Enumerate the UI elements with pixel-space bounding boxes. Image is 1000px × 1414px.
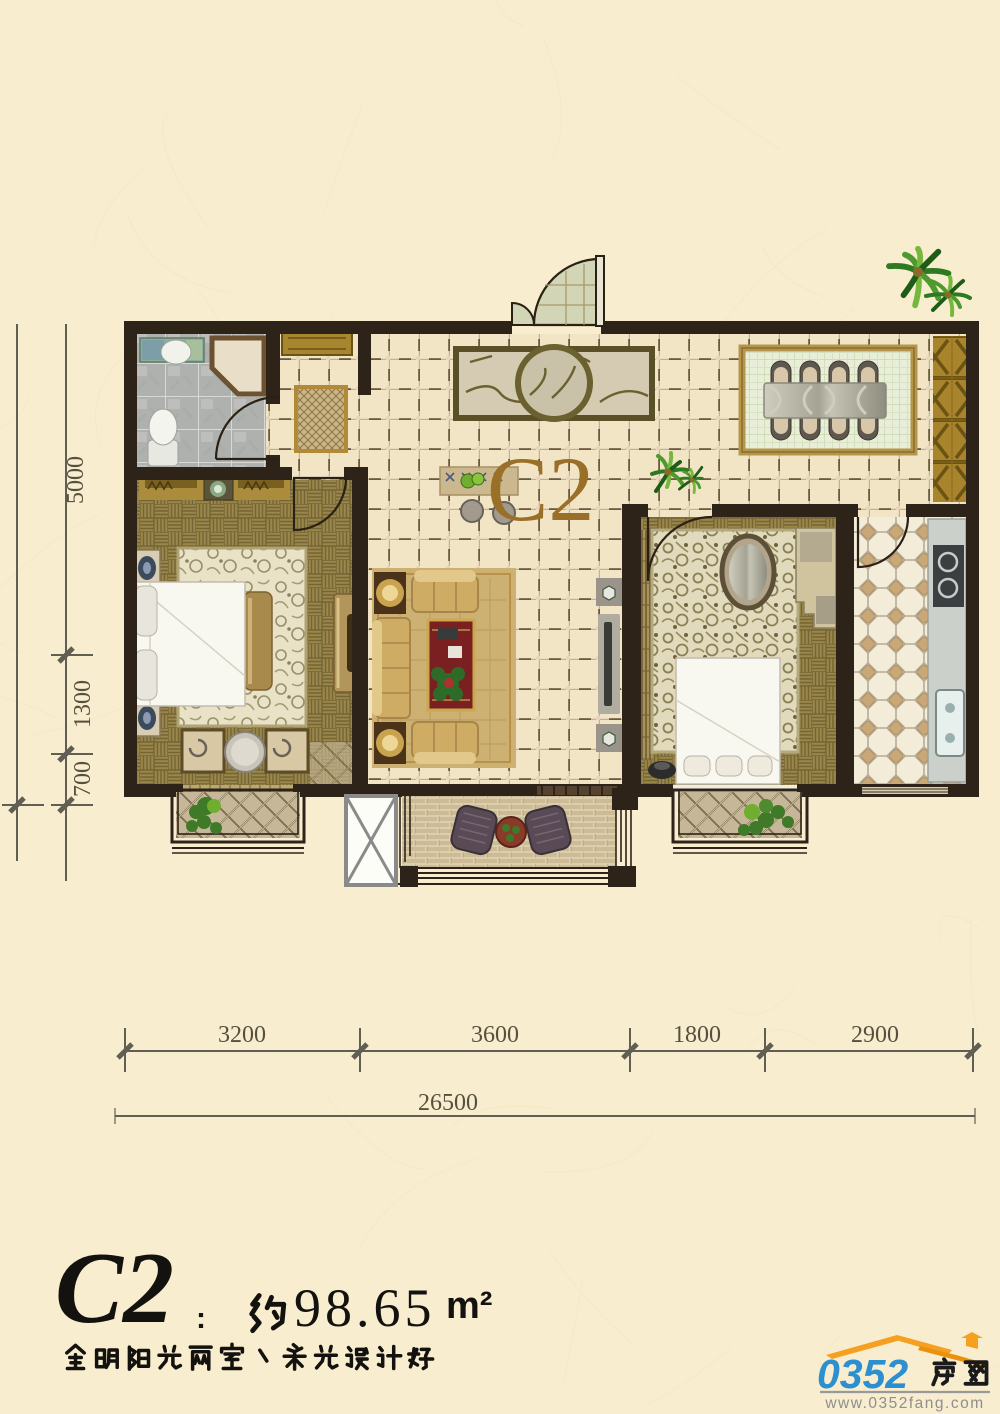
svg-text:0352: 0352 [817, 1351, 908, 1397]
svg-text:2900: 2900 [851, 1022, 899, 1048]
svg-text:1800: 1800 [673, 1022, 721, 1048]
svg-text:m²: m² [446, 1285, 492, 1327]
svg-text:C2: C2 [487, 438, 594, 540]
svg-text:3600: 3600 [471, 1022, 519, 1048]
svg-text:3200: 3200 [218, 1022, 266, 1048]
svg-text:5000: 5000 [63, 456, 89, 504]
svg-text:26500: 26500 [418, 1090, 478, 1116]
svg-text::: : [196, 1302, 206, 1335]
svg-text:www.0352fang.com: www.0352fang.com [824, 1395, 984, 1412]
svg-text:1300: 1300 [70, 680, 96, 728]
svg-text:700: 700 [70, 761, 96, 797]
svg-text:98.65: 98.65 [294, 1278, 436, 1338]
svg-text:C2: C2 [55, 1232, 174, 1345]
